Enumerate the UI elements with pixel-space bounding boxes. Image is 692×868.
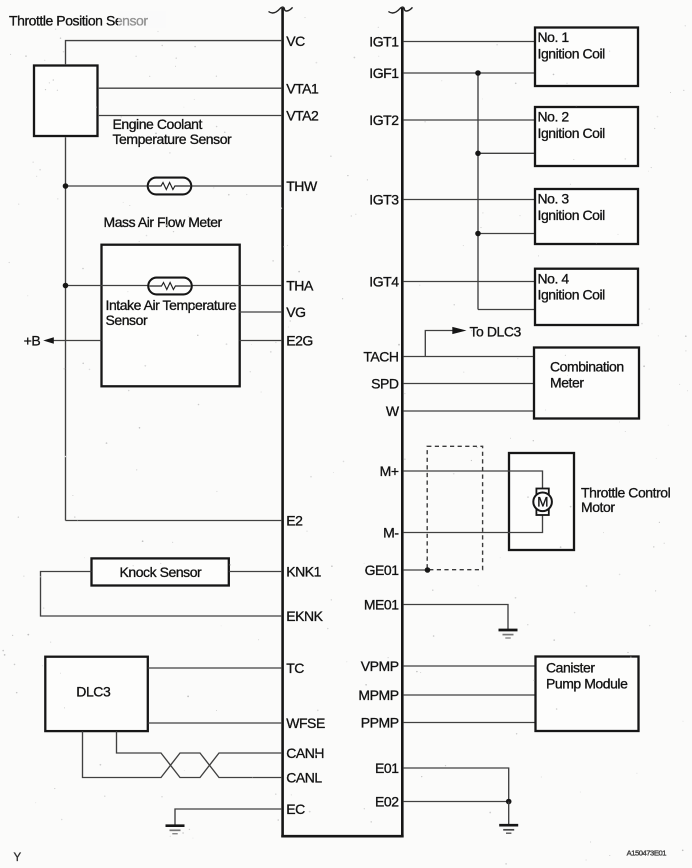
svg-text:WFSE: WFSE — [286, 715, 325, 731]
svg-text:Ignition Coil: Ignition Coil — [538, 125, 606, 141]
svg-text:M-: M- — [383, 525, 399, 541]
svg-text:A150473E01: A150473E01 — [627, 849, 667, 858]
svg-text:M: M — [537, 495, 548, 510]
svg-text:Knock Sensor: Knock Sensor — [120, 564, 203, 580]
svg-text:EC: EC — [286, 801, 305, 817]
svg-text:TC: TC — [286, 660, 304, 676]
svg-text:VPMP: VPMP — [361, 658, 399, 674]
svg-text:IGT3: IGT3 — [369, 192, 399, 208]
svg-text:Sensor: Sensor — [106, 312, 148, 328]
svg-text:To DLC3: To DLC3 — [470, 323, 522, 339]
svg-text:No. 2: No. 2 — [538, 109, 570, 125]
svg-text:PPMP: PPMP — [361, 715, 399, 731]
svg-text:Mass Air Flow Meter: Mass Air Flow Meter — [104, 214, 223, 230]
svg-text:Throttle Control: Throttle Control — [581, 484, 671, 500]
svg-text:Intake Air Temperature: Intake Air Temperature — [106, 297, 237, 313]
svg-text:DLC3: DLC3 — [76, 683, 111, 699]
svg-text:Ignition Coil: Ignition Coil — [538, 207, 606, 223]
svg-text:W: W — [386, 403, 400, 419]
svg-text:SPD: SPD — [371, 376, 399, 392]
svg-text:THW: THW — [286, 178, 318, 194]
svg-text:No. 4: No. 4 — [538, 270, 570, 286]
svg-text:MPMP: MPMP — [358, 687, 398, 703]
svg-text:M+: M+ — [380, 463, 399, 479]
svg-text:KNK1: KNK1 — [286, 564, 321, 580]
svg-text:IGF1: IGF1 — [369, 65, 399, 81]
svg-text:VTA2: VTA2 — [286, 108, 319, 124]
svg-text:Pump Module: Pump Module — [546, 675, 628, 691]
svg-text:No. 1: No. 1 — [538, 29, 570, 45]
svg-text:THA: THA — [286, 278, 314, 294]
svg-text:EKNK: EKNK — [286, 608, 323, 624]
svg-text:TACH: TACH — [363, 349, 398, 365]
svg-text:E01: E01 — [375, 760, 399, 776]
svg-text:Ignition Coil: Ignition Coil — [538, 46, 606, 62]
svg-text:Motor: Motor — [581, 499, 615, 515]
svg-text:CANH: CANH — [286, 745, 324, 761]
svg-text:IGT1: IGT1 — [369, 34, 399, 50]
svg-text:Y: Y — [14, 852, 22, 864]
svg-text:IGT2: IGT2 — [369, 112, 399, 128]
svg-text:Engine Coolant: Engine Coolant — [113, 116, 203, 132]
svg-text:+B: +B — [24, 332, 41, 348]
svg-text:CANL: CANL — [286, 770, 322, 786]
svg-text:VG: VG — [286, 304, 305, 320]
svg-text:Canister: Canister — [546, 660, 595, 676]
svg-text:Meter: Meter — [550, 375, 584, 391]
svg-text:VC: VC — [286, 33, 305, 49]
svg-text:E2: E2 — [286, 513, 303, 529]
svg-text:E2G: E2G — [286, 333, 313, 349]
svg-text:IGT4: IGT4 — [369, 274, 399, 290]
svg-text:Combination: Combination — [550, 359, 624, 375]
svg-text:VTA1: VTA1 — [286, 80, 319, 96]
svg-text:GE01: GE01 — [365, 562, 400, 578]
svg-text:No. 3: No. 3 — [538, 191, 570, 207]
svg-text:Ignition Coil: Ignition Coil — [538, 287, 606, 303]
svg-text:ME01: ME01 — [364, 597, 399, 613]
svg-text:E02: E02 — [375, 794, 399, 810]
svg-text:Temperature Sensor: Temperature Sensor — [113, 131, 233, 147]
